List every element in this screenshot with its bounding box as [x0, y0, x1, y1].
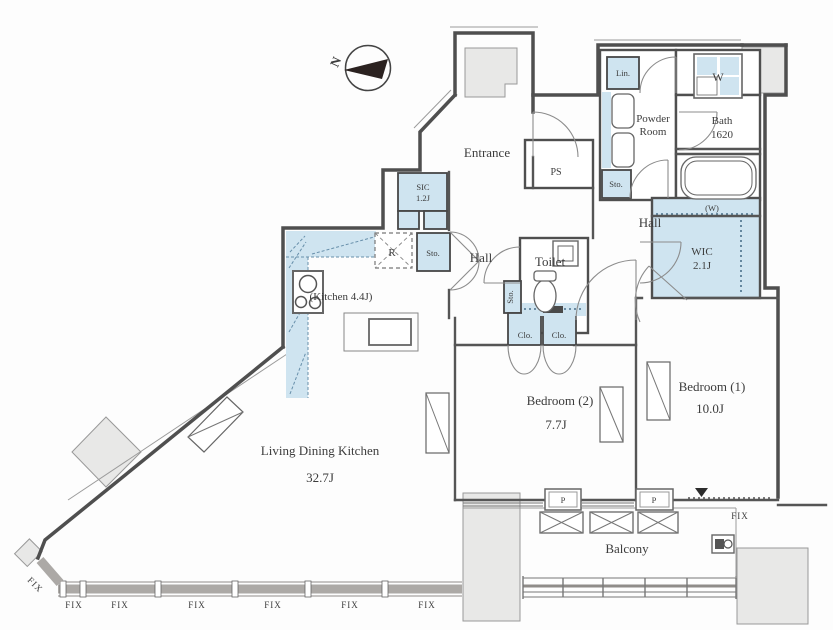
toilet-fixture [534, 271, 556, 312]
label-sto-top: Sto. [609, 179, 622, 189]
label-entrance: Entrance [464, 145, 510, 160]
label-fix-6: FIX [418, 600, 436, 610]
mullion-6 [382, 581, 388, 597]
marker-triangle [695, 488, 708, 497]
sic-sub2 [424, 211, 447, 229]
label-hall-right: Hall [639, 215, 662, 230]
mullion-2 [80, 581, 86, 597]
clo-box-2 [543, 313, 576, 345]
kitchen-fixtures [286, 231, 418, 398]
label-bedroom2-name: Bedroom (2) [527, 393, 594, 408]
kitchen-counter-left [286, 231, 308, 398]
column-entrance [465, 48, 517, 97]
sliding-panels [188, 362, 670, 453]
label-bath-1: Bath [712, 115, 733, 127]
sic-sub1 [398, 211, 419, 229]
label-ldk-name: Living Dining Kitchen [261, 443, 380, 458]
label-bedroom1-name: Bedroom (1) [679, 379, 746, 394]
label-fridge: R [388, 247, 396, 259]
label-clo-2: Clo. [552, 330, 566, 340]
label-hall-left: Hall [470, 250, 493, 265]
label-kitchen: (Kitchen 4.4J) [310, 291, 373, 303]
label-wic-2: 2.1J [693, 260, 712, 272]
label-bedroom2-area: 7.7J [545, 417, 566, 432]
mullion-4 [232, 581, 238, 597]
label-w-hook: (W) [705, 203, 719, 213]
label-fix-corner: FIX [26, 575, 45, 594]
ldk-panel [426, 393, 449, 453]
kitchen-sink [369, 319, 411, 345]
ldk-angled-panel [188, 397, 243, 452]
mullion-1 [60, 581, 66, 597]
label-sic-1: SIC [416, 182, 430, 192]
label-powder-1: Powder [636, 113, 670, 125]
clo-doors [508, 345, 576, 374]
label-balcony: Balcony [605, 541, 649, 556]
windows-balcony [40, 488, 772, 599]
bedroom2-panel [600, 387, 623, 442]
label-wic-1: WIC [691, 246, 712, 258]
label-washer: W [712, 70, 724, 84]
label-sic-2: 1.2J [416, 193, 431, 203]
label-fix-4: FIX [264, 600, 282, 610]
sic-box [398, 173, 447, 211]
label-bedroom1-area: 10.0J [696, 401, 724, 416]
room-ps [525, 140, 593, 188]
floor-plan-svg: N Entrance PS Lin. W Powder Room Bath 16… [0, 0, 833, 630]
label-ldk-area: 32.7J [306, 470, 334, 485]
label-sto-hall: Sto. [426, 248, 439, 258]
compass-needle [344, 59, 388, 79]
balcony-ac-units [540, 512, 678, 533]
balcony-railing [523, 576, 736, 599]
compass-n: N [327, 54, 345, 69]
vanity-sink-1 [612, 94, 634, 128]
label-fix-2: FIX [111, 600, 129, 610]
label-fix-5: FIX [341, 600, 359, 610]
vanity-sink-2 [612, 133, 634, 167]
label-ps: PS [550, 167, 561, 178]
label-powder-2: Room [640, 126, 667, 138]
column-balcony-right [737, 548, 808, 624]
bathtub-inner [685, 161, 752, 195]
label-fix-3: FIX [188, 600, 206, 610]
floor-plan: N Entrance PS Lin. W Powder Room Bath 16… [0, 0, 833, 630]
bedroom1-panel [647, 362, 670, 420]
label-lin: Lin. [616, 68, 630, 78]
label-toilet: Toilet [535, 254, 566, 269]
corner-window-band [40, 560, 60, 583]
mullion-5 [305, 581, 311, 597]
label-fix-right: FIX [731, 511, 749, 521]
balcony-drain [712, 535, 734, 553]
label-p1: P [561, 495, 566, 505]
powder-vanity-strip [602, 92, 611, 168]
mullion-3 [155, 581, 161, 597]
north-arrow: N [327, 46, 391, 91]
column-balcony-left [463, 493, 520, 621]
label-p2: P [652, 495, 657, 505]
clo-box-1 [508, 313, 541, 345]
label-sto-side: Sto. [505, 290, 515, 303]
label-clo-1: Clo. [518, 330, 532, 340]
label-bath-2: 1620 [711, 129, 734, 141]
column-ldk-diamond [72, 417, 141, 487]
label-fix-1: FIX [65, 600, 83, 610]
